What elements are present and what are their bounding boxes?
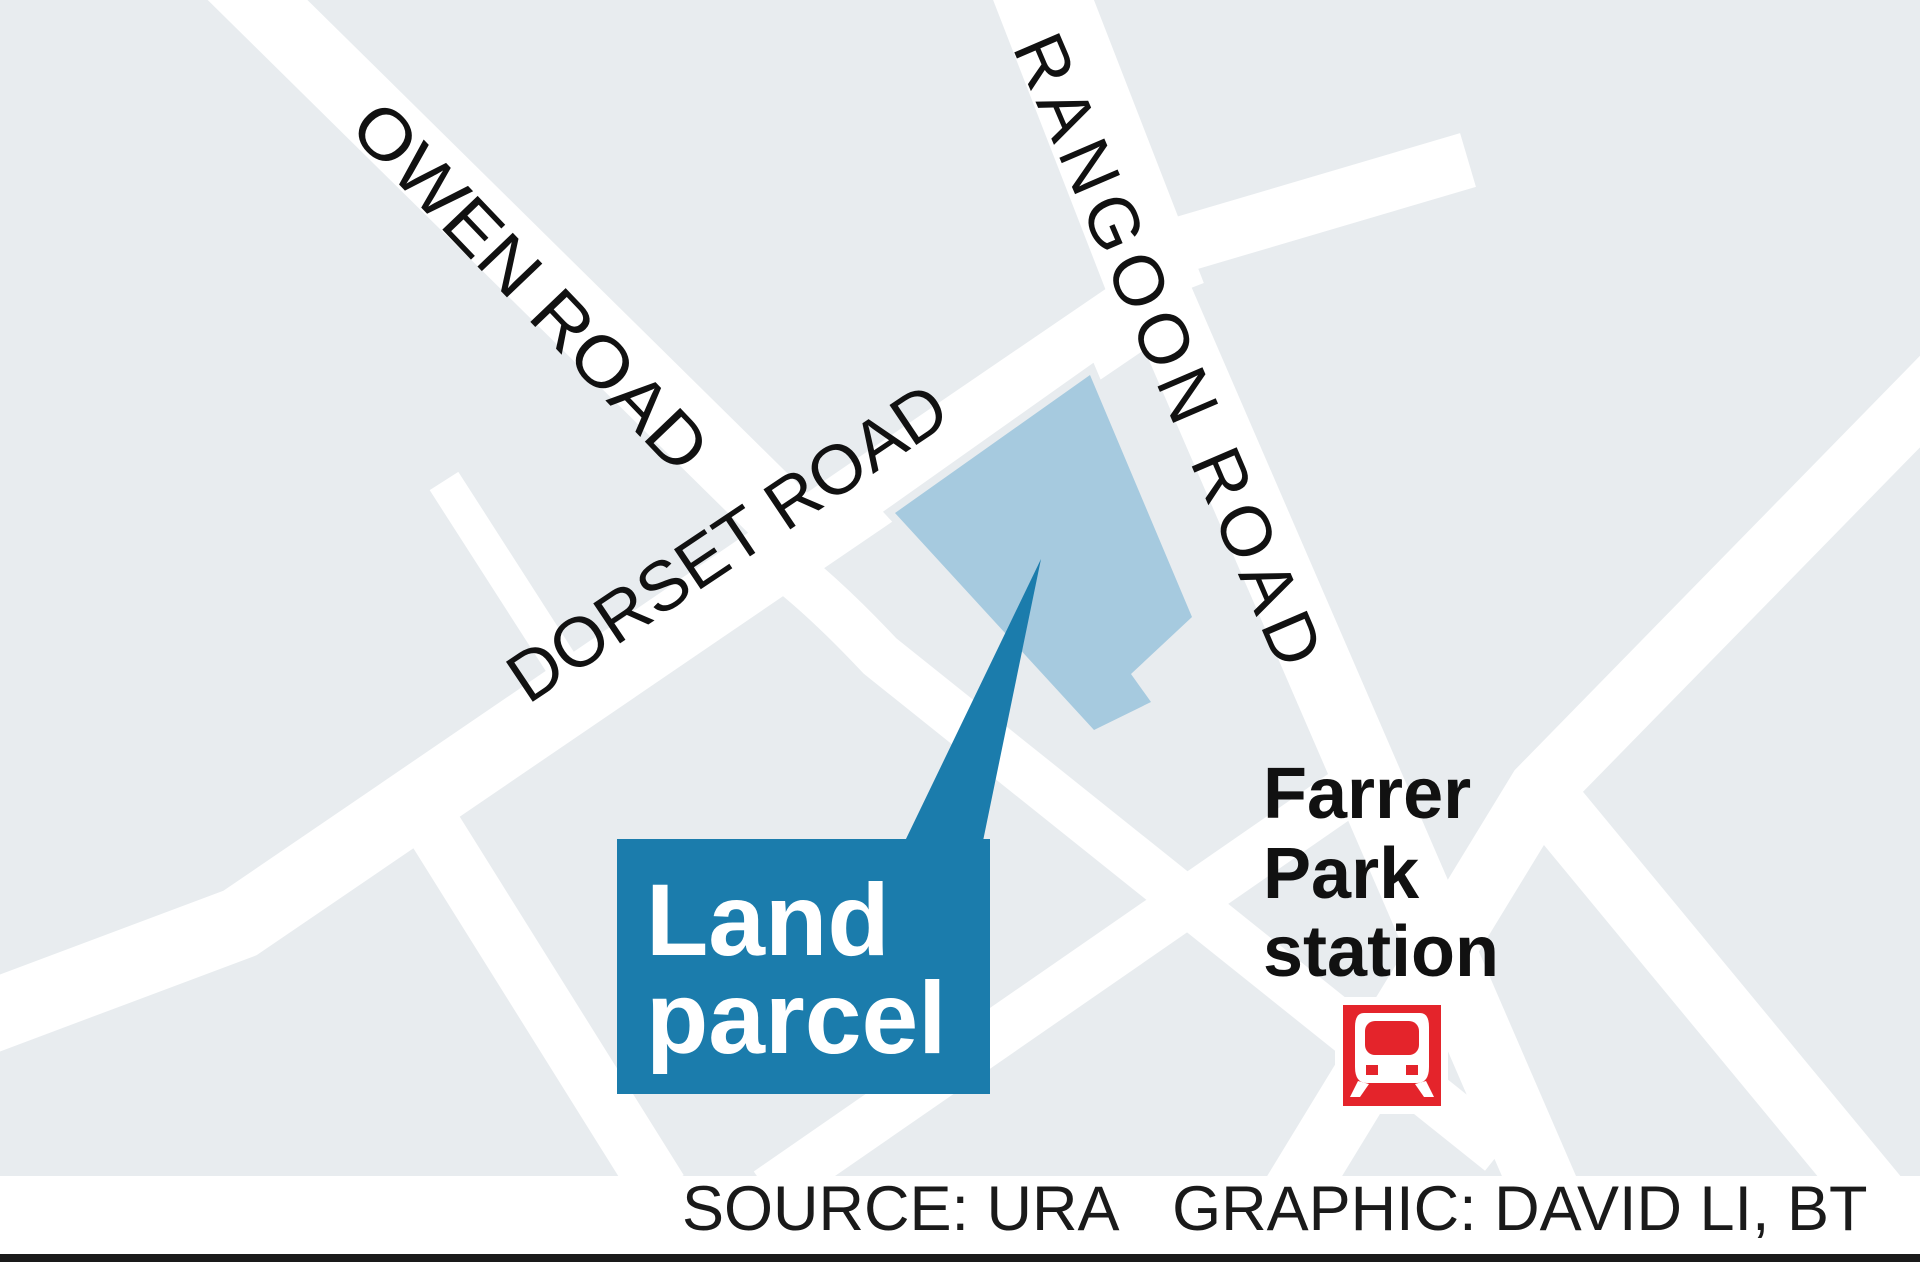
svg-text:station: station [1263,912,1499,992]
svg-text:Land: Land [646,863,890,977]
svg-text:parcel: parcel [646,961,947,1075]
svg-text:SOURCE: URA GRAPHIC: DAVID L: SOURCE: URA GRAPHIC: DAVID LI, BT [682,1174,1868,1244]
svg-text:Park: Park [1263,834,1420,914]
svg-text:Farrer: Farrer [1263,754,1471,834]
